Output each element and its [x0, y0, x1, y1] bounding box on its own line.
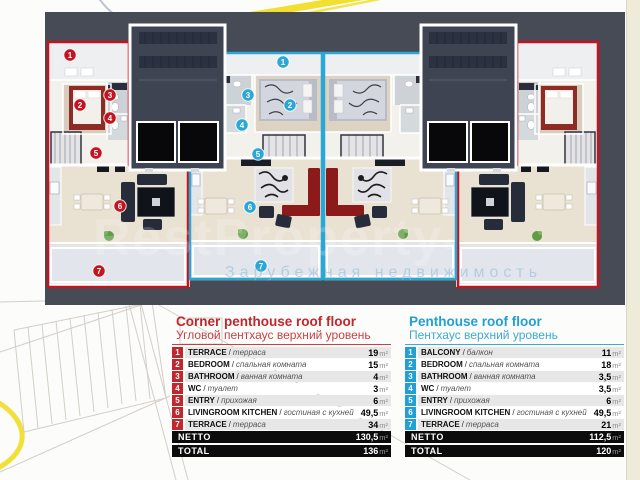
room-name-en: BALCONY — [421, 348, 461, 357]
area-unit: m² — [612, 361, 621, 370]
room-name-ru: прихожая — [454, 396, 490, 405]
total-label: TOTAL — [411, 446, 443, 456]
table-subtitle: Угловой пентхаус верхний уровень — [172, 329, 391, 345]
room-name-en: ENTRY — [188, 396, 215, 405]
beige-margin-band — [626, 0, 640, 480]
legend: Corner penthouse roof floor Угловой пент… — [172, 314, 624, 459]
legend-total-row: TOTAL 120m² — [405, 445, 624, 457]
table-totals: NETTO 112,5m² TOTAL 120m² — [405, 431, 624, 457]
room-name-ru: терраса — [233, 348, 266, 357]
room-marker-number: 3 — [108, 91, 113, 100]
room-area: 19m² — [364, 348, 388, 358]
room-number-badge: 1 — [172, 347, 183, 358]
area-unit: m² — [379, 385, 388, 394]
area-unit: m² — [612, 447, 621, 456]
room-marker-number: 7 — [97, 267, 102, 276]
room-area: 15m² — [364, 360, 388, 370]
room-name-en: TERRACE — [421, 420, 460, 429]
room-marker-number: 4 — [108, 114, 113, 123]
legend-row: 3 BATHROOM / ванная комната 4m² — [172, 371, 391, 382]
room-name-en: ENTRY — [421, 396, 448, 405]
room-name-ru: балкон — [467, 348, 493, 357]
room-number-badge: 4 — [405, 383, 416, 394]
room-name-ru: гостиная с кухней — [284, 408, 354, 417]
room-marker-number: 1 — [281, 58, 286, 67]
room-marker-number: 5 — [94, 149, 99, 158]
room-name-ru: гостиная с кухней — [517, 408, 587, 417]
table-title: Corner penthouse roof floor — [172, 314, 391, 329]
room-area: 3,5m² — [595, 372, 621, 382]
room-number-badge: 7 — [172, 419, 183, 430]
total-area: 130,5m² — [352, 432, 388, 442]
total-label: NETTO — [411, 432, 444, 442]
room-number-badge: 5 — [172, 395, 183, 406]
total-area: 112,5m² — [585, 432, 621, 442]
room-marker-number: 6 — [118, 202, 123, 211]
area-unit: m² — [612, 349, 621, 358]
room-name-en: TERRACE — [188, 420, 227, 429]
table-subtitle: Пентхаус верхний уровень — [405, 329, 624, 345]
room-marker-number: 1 — [68, 51, 73, 60]
room-area: 6m² — [602, 396, 621, 406]
table-rows: 1 BALCONY / балкон 11m² 2 BEDROOM / спал… — [405, 347, 624, 430]
total-area: 120m² — [592, 446, 621, 456]
room-number-badge: 2 — [405, 359, 416, 370]
room-area: 3,5m² — [595, 384, 621, 394]
room-name-en: LIVINGROOM KITCHEN — [421, 408, 510, 417]
room-number-badge: 1 — [405, 347, 416, 358]
area-unit: m² — [612, 421, 621, 430]
legend-total-row: NETTO 112,5m² — [405, 431, 624, 443]
legend-row: 4 WC / туалет 3,5m² — [405, 383, 624, 394]
room-area: 21m² — [597, 420, 621, 430]
room-number-badge: 2 — [172, 359, 183, 370]
area-unit: m² — [612, 409, 621, 418]
area-unit: m² — [379, 409, 388, 418]
legend-row: 7 TERRACE / терраса 21m² — [405, 419, 624, 430]
legend-table-corner-penthouse: Corner penthouse roof floor Угловой пент… — [172, 314, 391, 459]
area-unit: m² — [379, 421, 388, 430]
area-unit: m² — [379, 397, 388, 406]
legend-row: 4 WC / туалет 3m² — [172, 383, 391, 394]
table-rows: 1 TERRACE / терраса 19m² 2 BEDROOM / спа… — [172, 347, 391, 430]
total-label: TOTAL — [178, 446, 210, 456]
room-name-en: LIVINGROOM KITCHEN — [188, 408, 277, 417]
area-unit: m² — [379, 447, 388, 456]
room-name-en: BATHROOM — [188, 372, 235, 381]
room-name-ru: туалет — [441, 384, 471, 393]
room-name-en: BATHROOM — [421, 372, 468, 381]
page: { "watermark": { "brand": "RestProperty"… — [0, 0, 640, 480]
legend-row: 2 BEDROOM / спальная комната 15m² — [172, 359, 391, 370]
room-name-en: TERRACE — [188, 348, 227, 357]
room-area: 18m² — [597, 360, 621, 370]
legend-row: 6 LIVINGROOM KITCHEN / гостиная с кухней… — [172, 407, 391, 418]
total-area: 136m² — [359, 446, 388, 456]
room-name-ru: прихожая — [221, 396, 257, 405]
room-name-en: BEDROOM — [188, 360, 230, 369]
room-marker-number: 6 — [248, 203, 253, 212]
room-name-ru: спальная комната — [469, 360, 539, 369]
room-number-badge: 6 — [172, 407, 183, 418]
legend-row: 5 ENTRY / прихожая 6m² — [172, 395, 391, 406]
area-unit: m² — [379, 433, 388, 442]
table-title: Penthouse roof floor — [405, 314, 624, 329]
room-marker-number: 5 — [256, 150, 261, 159]
room-marker-number: 4 — [240, 121, 245, 130]
room-name-ru: терраса — [233, 420, 266, 429]
floorplan-svg: 12345671234567 — [45, 12, 625, 305]
room-name-ru: ванная комната — [241, 372, 303, 381]
legend-row: 6 LIVINGROOM KITCHEN / гостиная с кухней… — [405, 407, 624, 418]
room-name-en: BEDROOM — [421, 360, 463, 369]
room-number-badge: 6 — [405, 407, 416, 418]
area-unit: m² — [379, 349, 388, 358]
room-number-badge: 3 — [172, 371, 183, 382]
legend-row: 1 TERRACE / терраса 19m² — [172, 347, 391, 358]
table-totals: NETTO 130,5m² TOTAL 136m² — [172, 431, 391, 457]
area-unit: m² — [379, 361, 388, 370]
area-unit: m² — [612, 397, 621, 406]
room-name-ru: спальная комната — [236, 360, 306, 369]
legend-row: 1 BALCONY / балкон 11m² — [405, 347, 624, 358]
floorplan-render: 12345671234567 RestProperty® Зарубежная … — [45, 12, 625, 305]
room-name-en: WC — [421, 384, 434, 393]
legend-row: 3 BATHROOM / ванная комната 3,5m² — [405, 371, 624, 382]
room-area: 6m² — [369, 396, 388, 406]
room-number-badge: 5 — [405, 395, 416, 406]
legend-row: 7 TERRACE / терраса 34m² — [172, 419, 391, 430]
room-marker-number: 3 — [246, 91, 251, 100]
room-area: 49,5m² — [357, 408, 388, 418]
room-area: 4m² — [369, 372, 388, 382]
legend-total-row: TOTAL 136m² — [172, 445, 391, 457]
total-label: NETTO — [178, 432, 211, 442]
room-number-badge: 3 — [405, 371, 416, 382]
area-unit: m² — [612, 385, 621, 394]
area-unit: m² — [612, 373, 621, 382]
legend-table-penthouse: Penthouse roof floor Пентхаус верхний ур… — [405, 314, 624, 459]
room-marker-number: 2 — [288, 101, 293, 110]
room-name-ru: ванная комната — [474, 372, 536, 381]
room-area: 34m² — [364, 420, 388, 430]
room-area: 49,5m² — [590, 408, 621, 418]
room-name-ru: туалет — [208, 384, 238, 393]
room-marker-number: 7 — [259, 262, 264, 271]
legend-row: 5 ENTRY / прихожая 6m² — [405, 395, 624, 406]
room-marker-number: 2 — [78, 101, 83, 110]
room-number-badge: 7 — [405, 419, 416, 430]
area-unit: m² — [379, 373, 388, 382]
legend-row: 2 BEDROOM / спальная комната 18m² — [405, 359, 624, 370]
area-unit: m² — [612, 433, 621, 442]
room-name-en: WC — [188, 384, 201, 393]
room-number-badge: 4 — [172, 383, 183, 394]
room-name-ru: терраса — [466, 420, 499, 429]
legend-total-row: NETTO 130,5m² — [172, 431, 391, 443]
room-area: 11m² — [598, 348, 621, 358]
room-area: 3m² — [369, 384, 388, 394]
